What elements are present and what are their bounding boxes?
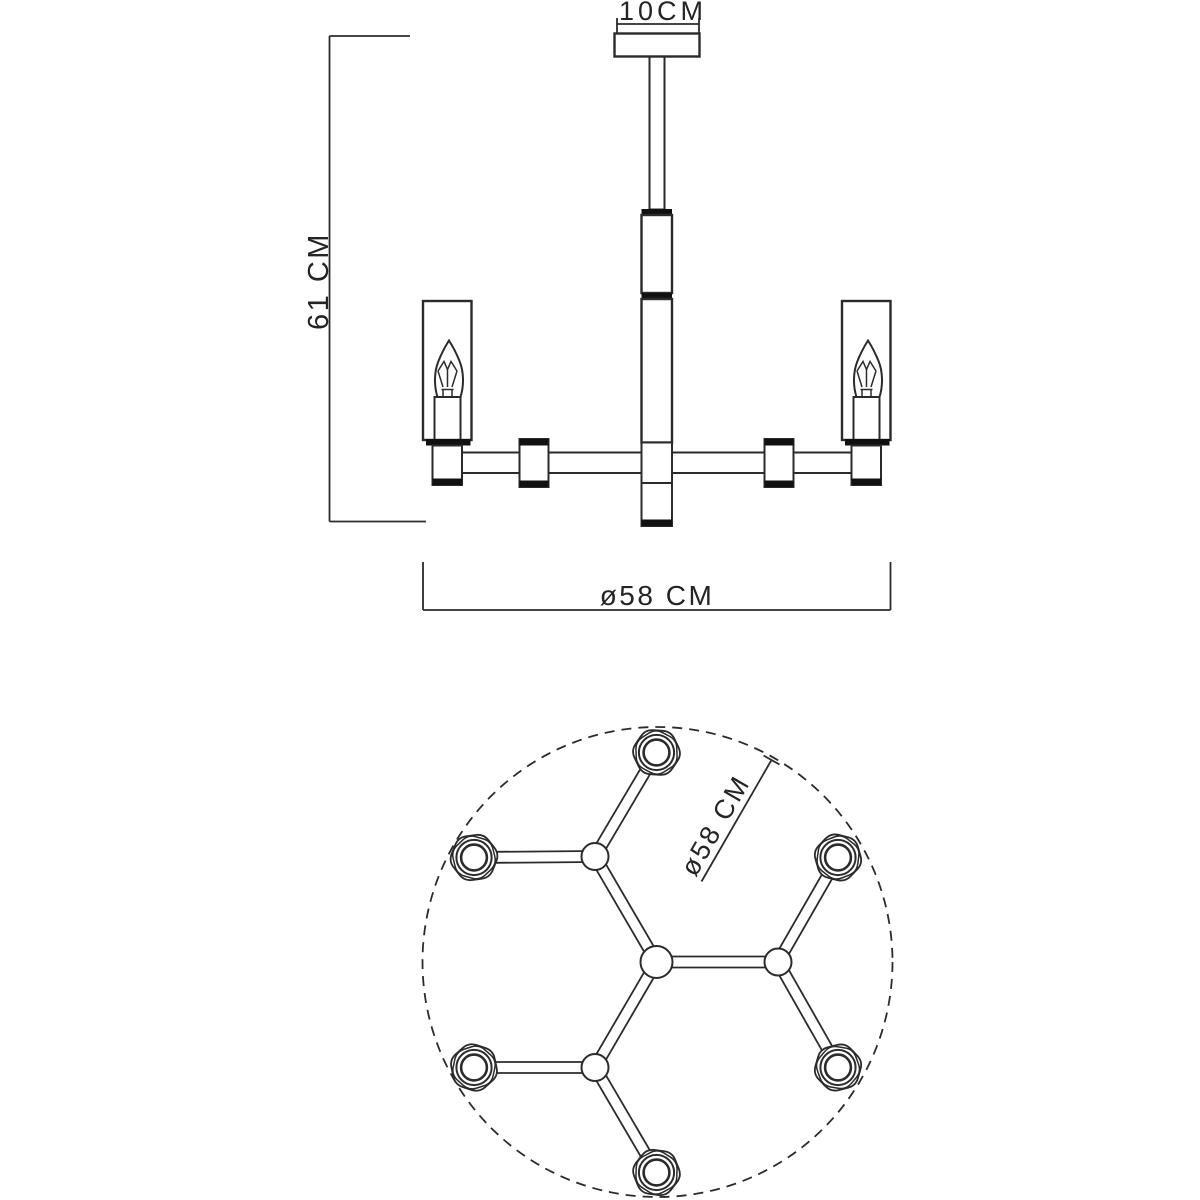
arm-connector-right: [765, 439, 794, 487]
central-stem: [642, 57, 673, 527]
plan-center-hub: [641, 946, 673, 978]
side-diameter-dimension: ø58 CM: [423, 562, 891, 611]
chandelier-technical-drawing: 10CM: [0, 0, 1200, 1200]
stem-bottom-cap: [642, 520, 673, 527]
plan-diameter-label: ø58 CM: [675, 770, 756, 881]
plan-arm-joint: [582, 843, 609, 870]
canopy-width-label: 10CM: [619, 0, 707, 26]
plan-arm-joint: [765, 949, 792, 976]
stem-junction: [642, 443, 673, 484]
plan-lamp-socket: [633, 1150, 680, 1195]
plan-joints: [582, 843, 792, 1081]
plan-arm-line: [600, 965, 662, 1071]
stem-tube-main: [642, 299, 673, 443]
plan-arm-line: [600, 854, 662, 960]
side-view: 10CM: [303, 0, 891, 611]
plan-arm-line: [590, 959, 652, 1065]
plan-lamp-socket: [451, 1044, 497, 1091]
drawing-canvas: 10CM: [0, 0, 1200, 1200]
side-diameter-label: ø58 CM: [600, 580, 715, 611]
candle-left: [423, 301, 472, 485]
plan-arm-line: [590, 859, 652, 965]
plan-lamp-socket: [815, 1044, 861, 1090]
canopy-width-dimension: 10CM: [617, 0, 707, 33]
plan-arm-joint: [582, 1054, 609, 1081]
height-dimension: 61 CM: [303, 36, 426, 522]
ceiling-canopy: [615, 34, 700, 57]
stem-tube-upper: [642, 215, 673, 293]
plan-lamp-socket: [451, 835, 498, 880]
plan-view: ø58 CM: [423, 727, 893, 1197]
stem-rod: [650, 57, 665, 210]
arm-connector-left: [520, 439, 549, 487]
plan-lamp-socket: [633, 730, 680, 775]
plan-diameter-dimension: ø58 CM: [675, 756, 780, 882]
height-label: 61 CM: [303, 232, 335, 330]
plan-lamp-socket: [815, 834, 861, 880]
candle-right: [842, 301, 891, 485]
